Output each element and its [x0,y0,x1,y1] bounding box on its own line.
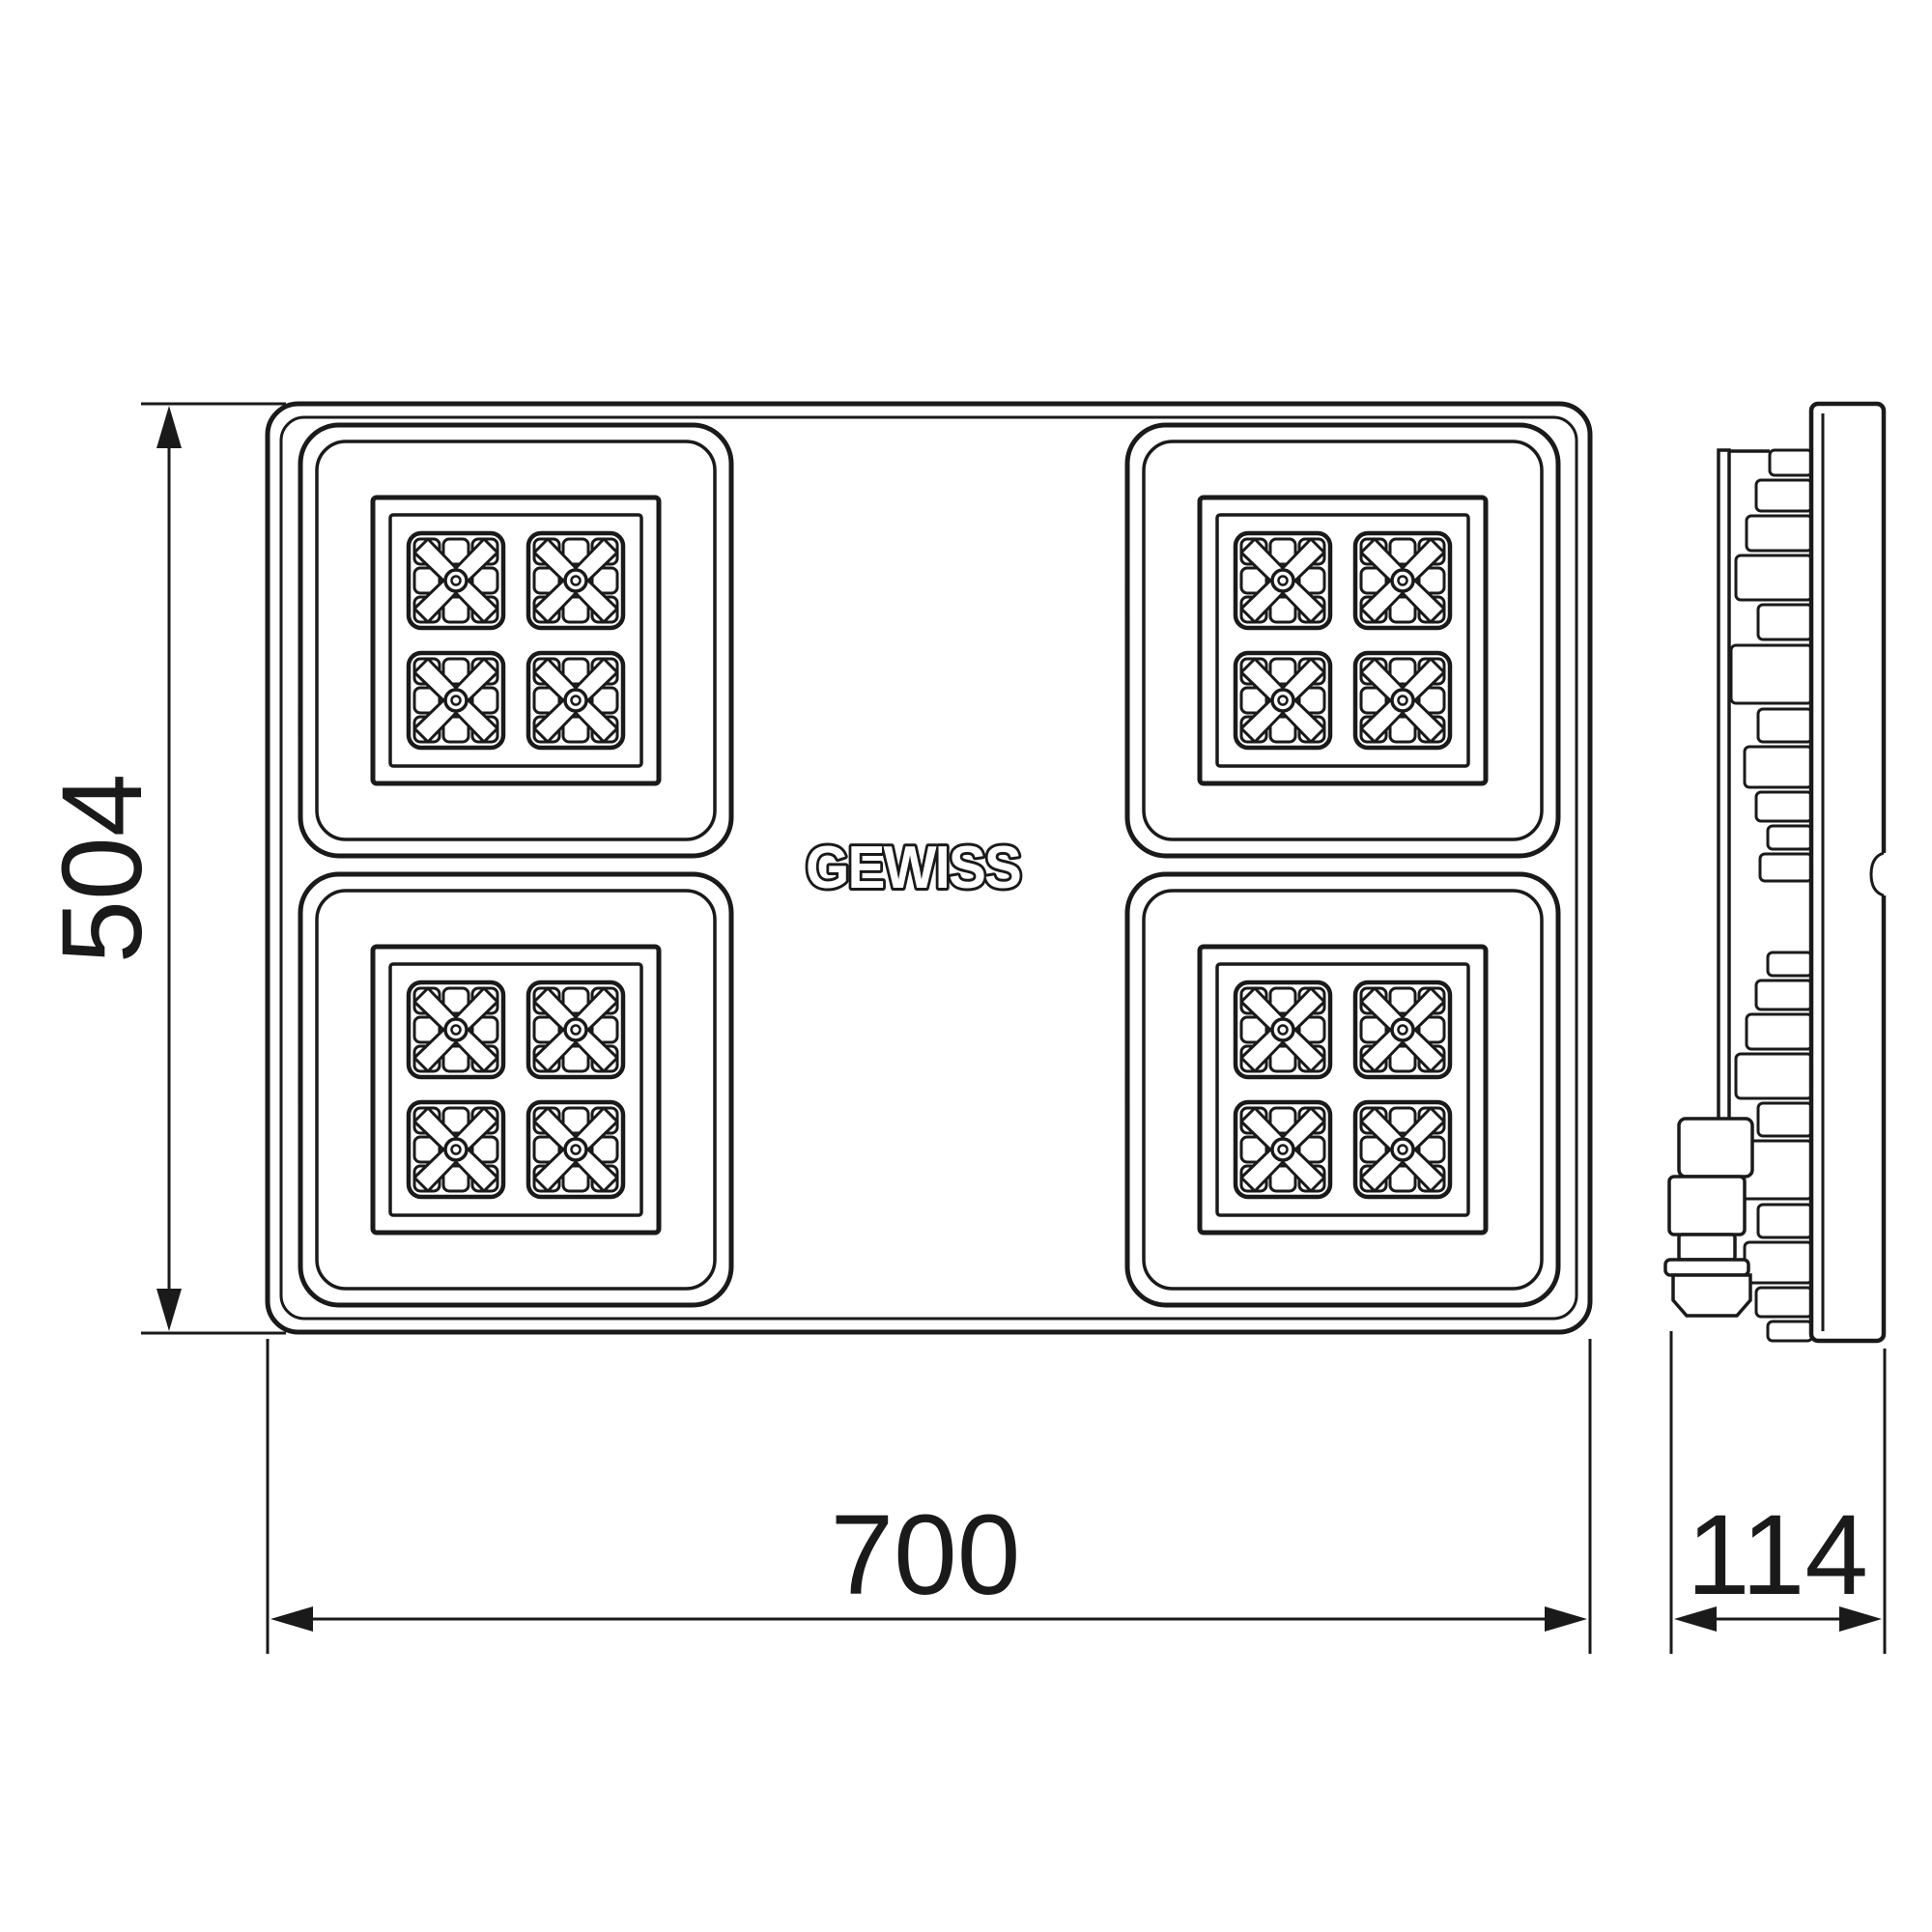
heatsink-fin [1756,480,1812,511]
arrowhead-down [156,1289,182,1331]
dimension-width: 700 [268,1339,1590,1654]
led-module-bottom-right [1127,874,1558,1305]
heatsink-fin [1736,1054,1812,1098]
heatsink-fin [1758,605,1812,639]
cable-gland-cap [1673,1275,1750,1316]
led-module-bottom-left [300,874,731,1305]
dimension-height: 504 [39,404,286,1333]
dimension-label-width: 700 [831,1492,1021,1619]
side-view [1665,404,1884,1341]
heatsink-fin [1745,747,1812,787]
heatsink-fin [1756,792,1812,821]
heatsink-fin [1756,980,1812,1009]
dimension-label-height: 504 [39,774,166,964]
led-module-top-left [300,425,731,856]
lens-panel [1811,404,1884,1341]
arrowhead-left [270,1606,313,1632]
heatsink-upper-fins [1731,450,1812,881]
arrowhead-right [1545,1606,1587,1632]
heatsink-fin [1736,555,1812,600]
heatsink-fin [1758,1205,1812,1237]
heatsink-fin [1768,1321,1812,1341]
heatsink-fin [1768,952,1812,976]
heatsink-fin [1758,1103,1812,1136]
heatsink-fin [1758,709,1812,742]
heatsink-fin [1731,645,1812,703]
heatsink-fin [1756,1288,1812,1317]
dimension-depth: 114 [1671,1331,1885,1654]
heatsink-fin [1760,854,1812,881]
brand-logo: GEWISS [806,835,1020,901]
led-module-top-right [1127,425,1558,856]
technical-drawing: GEWISS [0,0,1932,1932]
arrowhead-up [156,406,182,448]
heatsink-fin [1747,1014,1812,1049]
cable-gland-body [1679,1119,1752,1177]
front-view: GEWISS [268,404,1590,1332]
dimension-label-depth: 114 [1687,1492,1868,1619]
cable-gland [1665,1119,1752,1316]
rear-plate [1719,450,1729,1121]
heatsink-fin [1770,450,1812,475]
heatsink-fin [1745,1242,1812,1283]
heatsink-fin [1768,826,1812,849]
cable-gland-ring [1665,1260,1748,1275]
cable-gland-neck [1679,1235,1735,1260]
cable-gland-hex [1669,1177,1745,1235]
heatsink-fin [1747,516,1812,551]
